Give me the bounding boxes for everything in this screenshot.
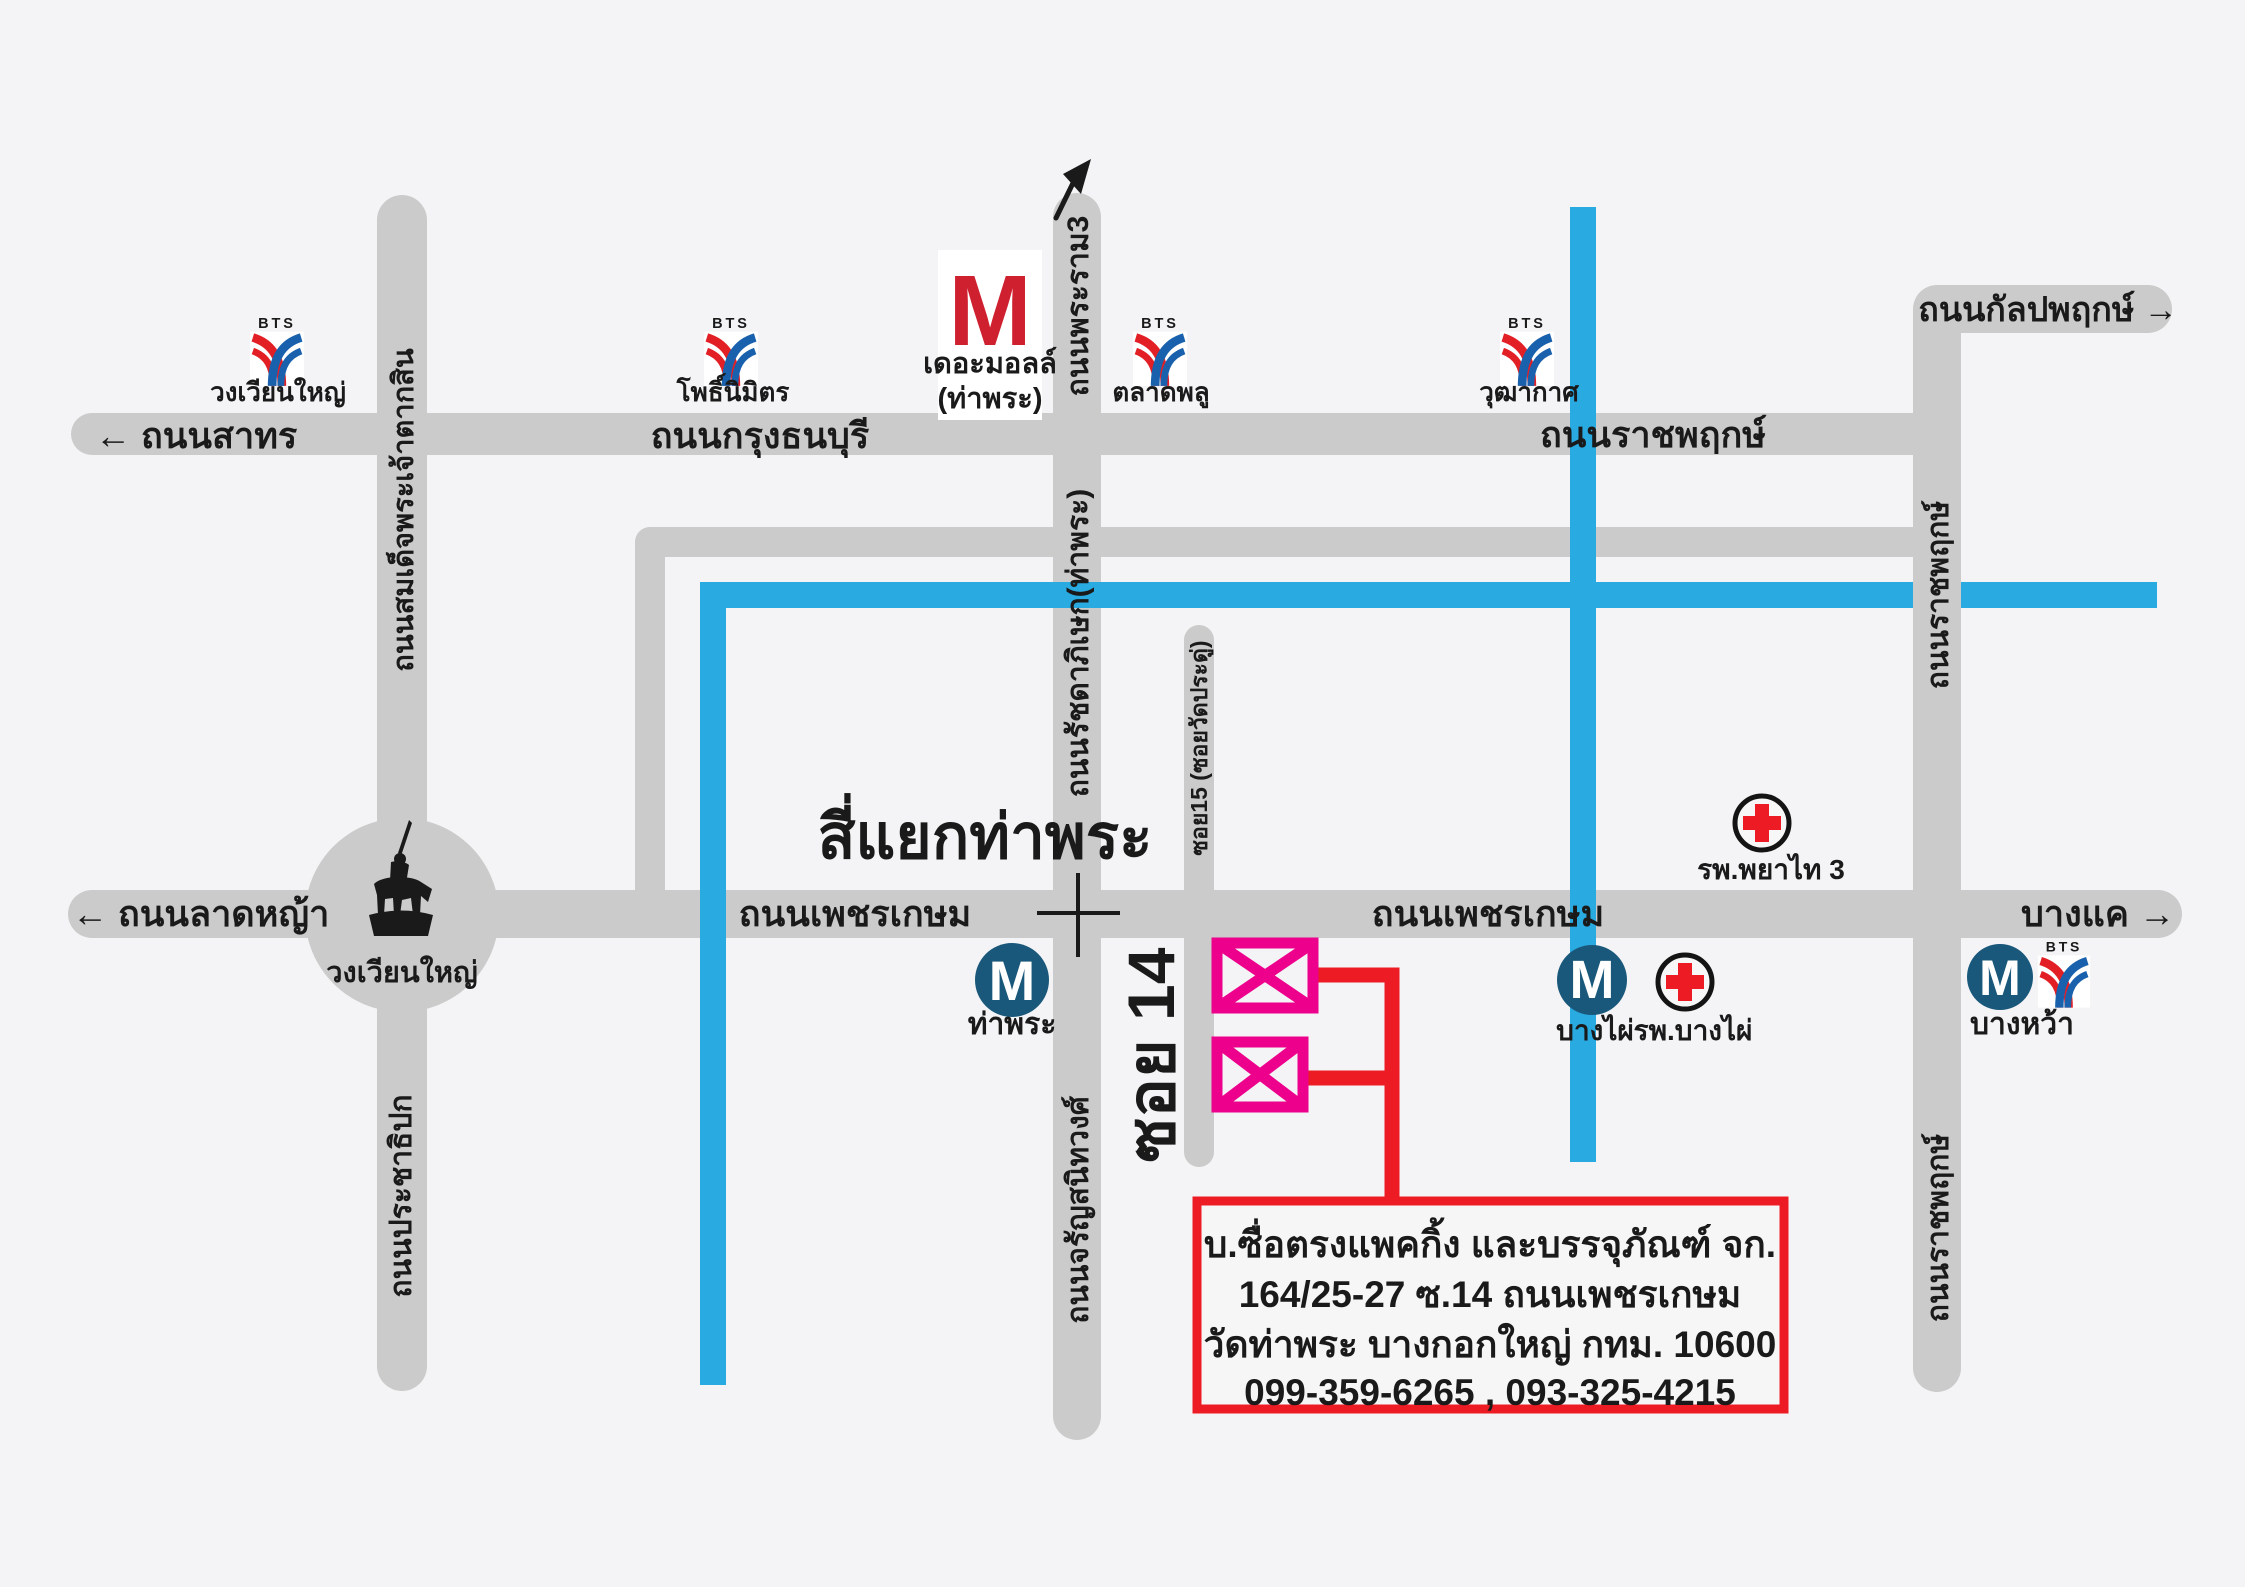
hospital-cross-icon [1658,955,1712,1009]
road-label-soi15: ซอย15 (ซอยวัดประดู่) [1186,640,1214,855]
road-label-sathorn: ← ถนนสาทร [95,415,298,456]
tha-phra-intersection-label: สี่แยกท่าพระ [818,793,1153,872]
road-label-phetkasem-west: ถนนเพชรเกษม [739,893,971,934]
road-label-krung-thonburi: ถนนกรุงธนบุรี [651,415,870,459]
map-canvas: BTS [0,0,2245,1587]
address-line-1: บ.ซื่อตรงแพคกิ้ง และบรรจุภัณฑ์ จก. [1204,1217,1776,1268]
mrt-station-label: บางหว้า [1970,1008,2074,1041]
mrt-logo-letter: M [989,949,1036,1012]
hospital-label: รพ.บางไผ่ [1634,1014,1753,1046]
road-label-prachathipok: ถนนประชาธิปก [385,1094,418,1297]
address-phone-line: 099-359-6265 , 093-325-4215 [1244,1372,1736,1413]
address-line-3: วัดท่าพระ บางกอกใหญ่ กทม. 10600 [1204,1322,1777,1366]
road-label-ratchaphruek-right-upper: ถนนราชพฤกษ์ [1921,500,1955,689]
hospital-cross-icon [1735,796,1789,850]
bts-station-label: วงเวียนใหญ่ [210,377,346,408]
wongwian-yai-label: วงเวียนใหญ่ [326,955,477,990]
the-mall-name-label: เดอะมอลล์ [923,346,1057,380]
address-box: บ.ซื่อตรงแพคกิ้ง และบรรจุภัณฑ์ จก. 164/2… [1197,1201,1784,1413]
bts-station-label: ตลาดพลู [1112,377,1209,409]
road-label-taksin: ถนนสมเด็จพระเจ้าตากสิน [385,348,420,672]
road-label-charansanitwong: ถนนจรัญสนิทวงศ์ [1061,1095,1096,1324]
road-label-ratchaphruek-top: ถนนราชพฤกษ์ [1540,414,1767,455]
road-label-kanlapaphruek: ถนนกัลปพฤกษ์ → [1918,290,2178,329]
address-line-2: 164/25-27 ซ.14 ถนนเพชรเกษม [1239,1274,1742,1315]
mrt-logo-letter: M [1570,950,1615,1010]
the-mall-branch-label: (ท่าพระ) [938,383,1043,415]
road-label-rama3: ถนนพระราม3 [1062,216,1095,397]
bts-station-label: โพธิ์นิมิตร [676,372,790,407]
road-label-ratchaphruek-right-lower: ถนนราชพฤกษ์ [1921,1133,1955,1322]
road-label-ratchadaphisek: ถนนรัชดาภิเษก(ท่าพระ) [1062,489,1095,798]
hospital-label: รพ.พยาไท 3 [1697,853,1845,885]
mrt-logo-letter: M [1979,950,2021,1006]
mrt-station-label: ท่าพระ [968,1008,1057,1041]
road-label-lat-ya: ← ถนนลาดหญ้า [72,893,329,935]
the-mall-landmark: M เดอะมอลล์ (ท่าพระ) [923,250,1057,420]
bts-station-label: วุฒากาศ [1479,377,1579,409]
road-label-soi14: ซอย 14 [1114,947,1188,1162]
map-page: BTS [0,0,2245,1587]
road-label-bang-khae: บางแค → [2021,893,2175,934]
mrt-station-label: บางไผ่ [1556,1014,1634,1046]
map-background [0,0,2245,1587]
road-label-phetkasem-east: ถนนเพชรเกษม [1372,893,1604,934]
